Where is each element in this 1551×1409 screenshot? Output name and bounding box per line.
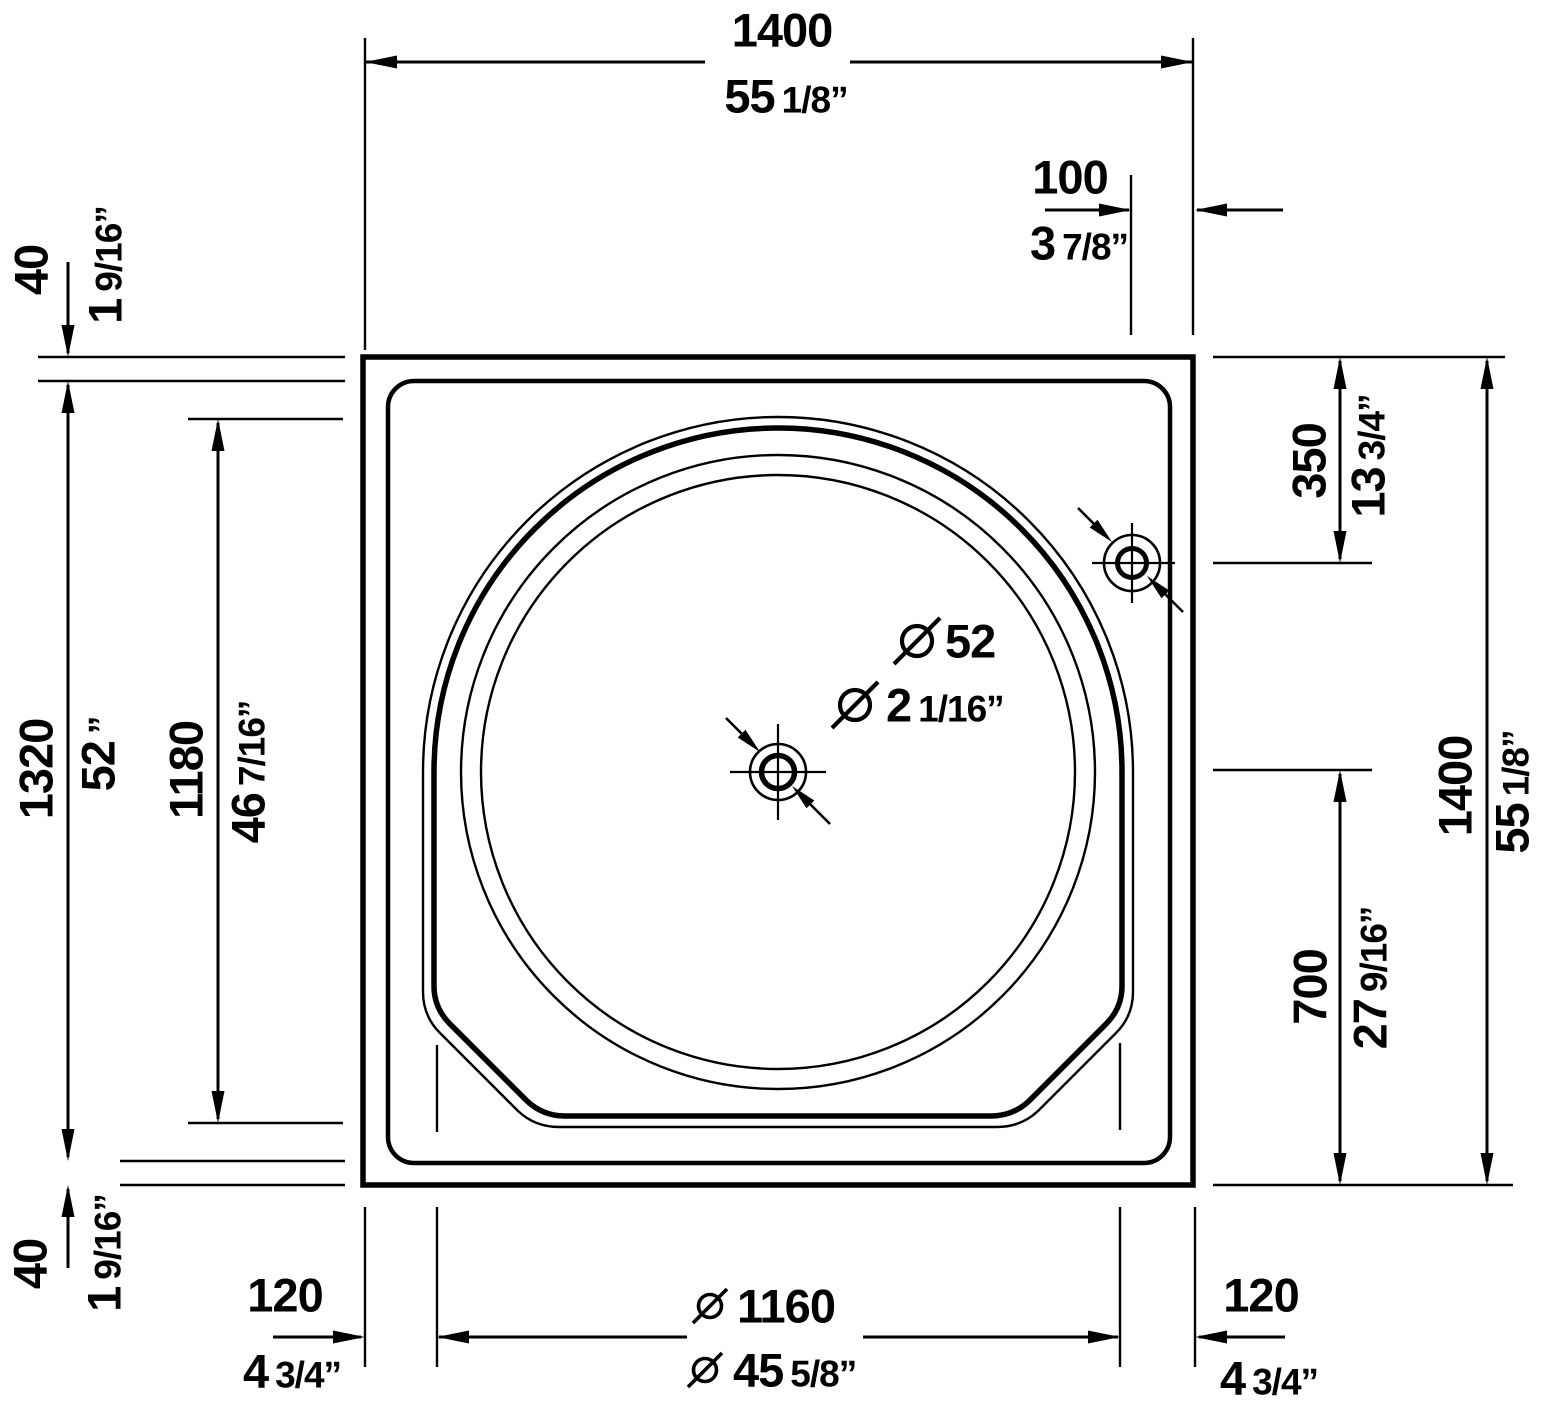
diameter-icon bbox=[693, 1289, 727, 1323]
diameter-symbols bbox=[688, 618, 940, 1387]
drain-symbol bbox=[726, 718, 830, 824]
dim-jet-top-offset-mm: 350 bbox=[1286, 423, 1333, 498]
dim-inner-width-in: 52” bbox=[75, 717, 122, 792]
dim-basin-diameter-mm: 1160 bbox=[737, 1283, 835, 1330]
dim-jet-top-offset-in: 133/4” bbox=[1345, 394, 1392, 517]
dim-drain-bottom-offset-mm: 700 bbox=[1287, 949, 1334, 1024]
dim-ledge-left-in: 43/4” bbox=[243, 1348, 341, 1395]
dim-drain-bottom-offset-in: 279/16” bbox=[1347, 907, 1394, 1050]
dim-inner-width-mm: 1320 bbox=[13, 719, 60, 820]
diameter-icon bbox=[832, 682, 878, 728]
diameter-icon bbox=[688, 1353, 722, 1387]
dim-jet-edge-offset-in: 37/8” bbox=[1030, 220, 1128, 267]
dim-ledge-right-in: 43/4” bbox=[1220, 1355, 1318, 1402]
drain-leader-lower bbox=[808, 802, 830, 824]
dim-rim-bottom-in: 19/16” bbox=[81, 1194, 128, 1312]
jet-symbol bbox=[1078, 508, 1183, 612]
dim-rim-top-in: 19/16” bbox=[82, 206, 129, 324]
dim-basin-diameter-in: 455/8” bbox=[733, 1347, 856, 1394]
dim-overall-height-in: 551/8” bbox=[1489, 730, 1536, 853]
technical-drawing-canvas: 1400 551/8” 100 37/8” 40 19/16” 1320 52”… bbox=[0, 0, 1551, 1409]
dim-jet-edge-offset-mm: 100 bbox=[1032, 154, 1107, 201]
dim-drain-diameter-in: 21/16” bbox=[886, 682, 1004, 729]
jet-leader-lower bbox=[1163, 592, 1183, 612]
dim-overall-width-mm: 1400 bbox=[732, 7, 833, 54]
dim-basin-extent-mm: 1180 bbox=[163, 721, 210, 819]
dim-overall-width-in: 551/8” bbox=[724, 73, 847, 120]
dim-rim-top-mm: 40 bbox=[8, 245, 55, 295]
dim-rim-bottom-mm: 40 bbox=[7, 1239, 54, 1289]
dim-ledge-left-mm: 120 bbox=[247, 1272, 322, 1319]
diameter-icon bbox=[894, 618, 940, 664]
dim-overall-height-mm: 1400 bbox=[1432, 736, 1479, 837]
dim-ledge-right-mm: 120 bbox=[1223, 1272, 1298, 1319]
dimension-arrowheads bbox=[62, 56, 1494, 1344]
dim-basin-extent-in: 467/16” bbox=[225, 701, 272, 844]
dim-drain-diameter-mm: 52 bbox=[945, 618, 995, 665]
dimension-lines bbox=[68, 62, 1487, 1337]
